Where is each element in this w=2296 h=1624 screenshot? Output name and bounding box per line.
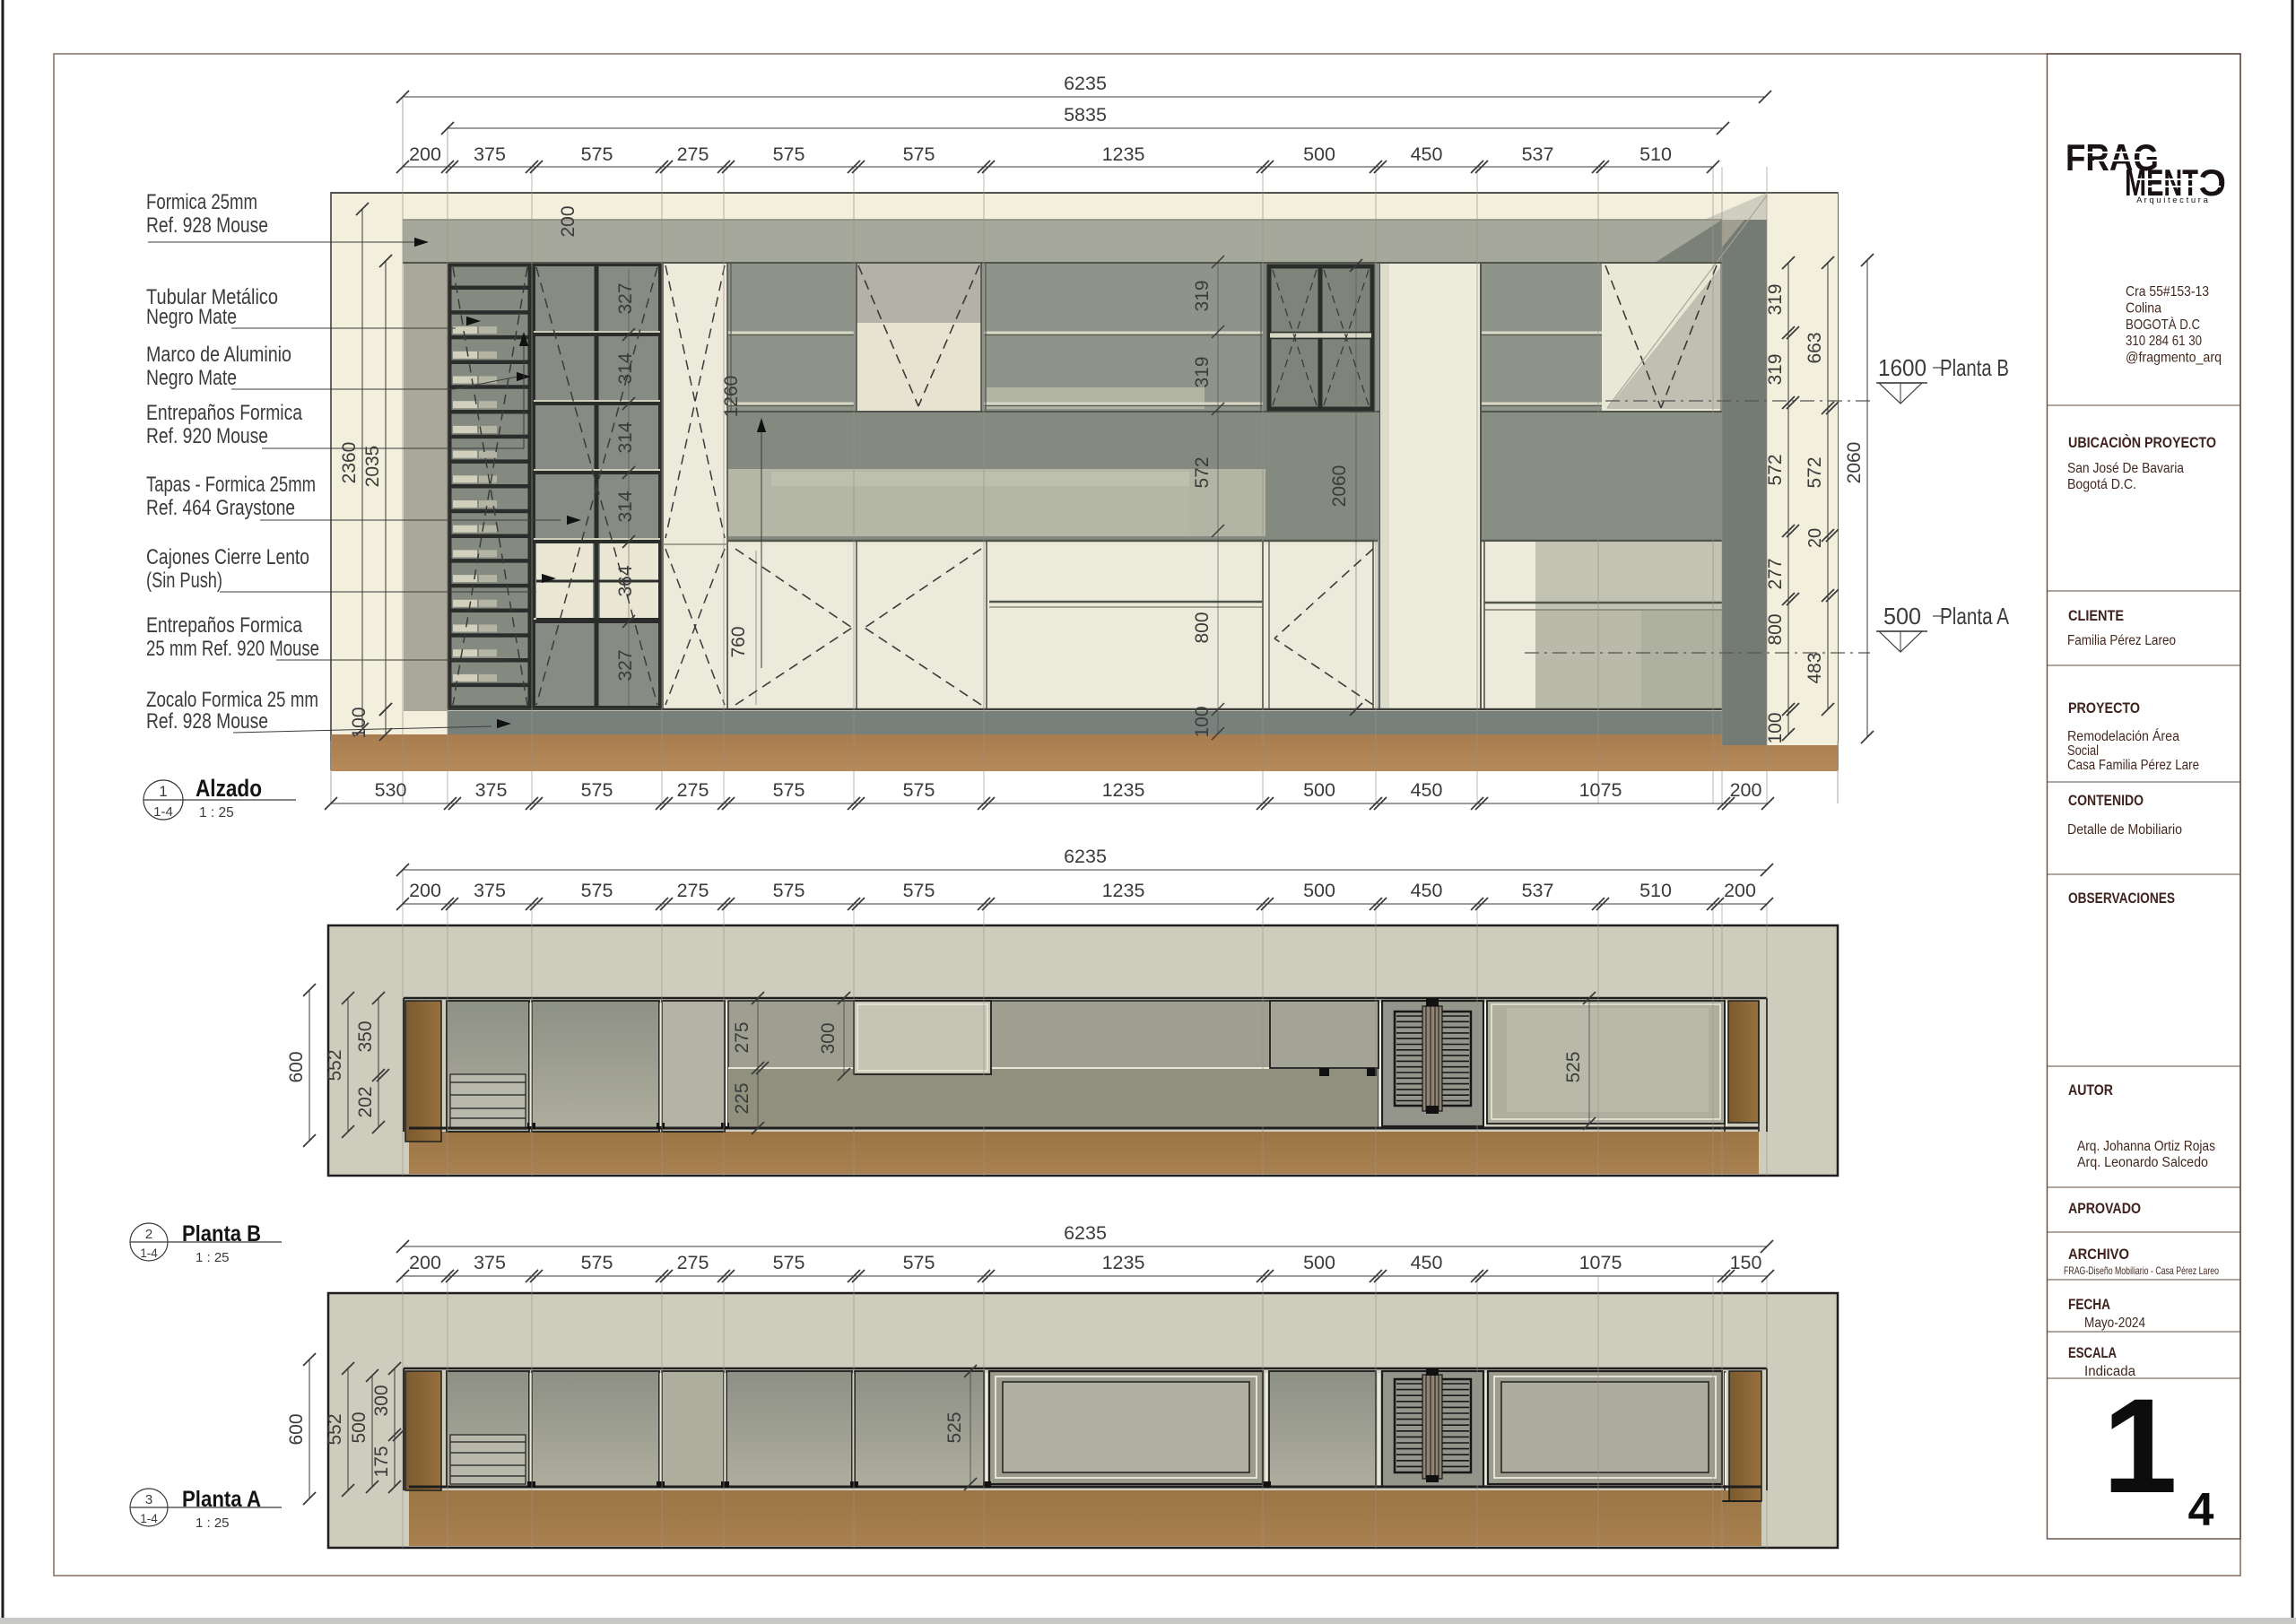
svg-text:310 284 61 30: 310 284 61 30 [2126,334,2202,349]
svg-text:1-4: 1-4 [140,1512,158,1525]
svg-text:510: 510 [1639,880,1672,901]
svg-text:575: 575 [773,880,805,901]
svg-text:@fragmento_arq: @fragmento_arq [2126,351,2222,366]
svg-text:202: 202 [355,1086,376,1117]
svg-text:450: 450 [1411,779,1443,801]
svg-text:Zocalo Formica 25 mm: Zocalo Formica 25 mm [146,688,318,712]
svg-text:319: 319 [1192,280,1213,311]
svg-text:PROYECTO: PROYECTO [2068,699,2140,716]
svg-text:1 : 25: 1 : 25 [196,1515,230,1531]
svg-text:Ref. 928 Mouse: Ref. 928 Mouse [146,213,268,238]
svg-text:UBICACIÒN PROYECTO: UBICACIÒN PROYECTO [2068,434,2216,451]
svg-text:5835: 5835 [1064,104,1107,126]
svg-text:Mayo-2024: Mayo-2024 [2084,1316,2145,1331]
svg-text:1: 1 [2102,1370,2177,1521]
svg-text:1235: 1235 [1102,779,1145,801]
svg-text:San José De Bavaria: San José De Bavaria [2067,461,2184,476]
svg-text:200: 200 [409,1252,441,1273]
svg-text:2035: 2035 [362,446,383,488]
svg-text:575: 575 [773,143,805,165]
svg-text:314: 314 [615,491,636,522]
svg-text:Social: Social [2067,743,2099,759]
svg-text:552: 552 [325,1049,345,1081]
svg-text:275: 275 [677,1252,709,1273]
svg-text:800: 800 [1765,613,1786,645]
svg-text:2: 2 [145,1227,152,1242]
svg-text:FECHA: FECHA [2068,1296,2110,1313]
svg-text:6235: 6235 [1064,846,1107,867]
svg-text:275: 275 [677,143,709,165]
svg-text:575: 575 [581,1252,613,1273]
svg-text:200: 200 [409,143,441,165]
svg-text:200: 200 [1724,880,1756,901]
svg-text:319: 319 [1765,283,1786,315]
svg-text:600: 600 [286,1051,307,1082]
svg-text:Entrepaños Formica: Entrepaños Formica [146,613,303,638]
svg-text:ARCHIVO: ARCHIVO [2068,1246,2129,1263]
svg-text:537: 537 [1522,880,1554,901]
svg-text:6235: 6235 [1064,1222,1107,1244]
svg-text:300: 300 [818,1022,839,1054]
svg-text:500: 500 [349,1411,370,1443]
svg-text:450: 450 [1411,143,1443,165]
svg-text:Cajones Cierre Lento: Cajones Cierre Lento [146,545,309,569]
svg-text:450: 450 [1411,1252,1443,1273]
svg-text:OBSERVACIONES: OBSERVACIONES [2068,890,2175,907]
svg-text:CLIENTE: CLIENTE [2068,607,2124,624]
svg-text:Cra 55#153-13: Cra 55#153-13 [2126,284,2209,300]
svg-text:663: 663 [1805,332,1825,363]
svg-text:375: 375 [475,779,508,801]
svg-text:Tapas - Formica 25mm: Tapas - Formica 25mm [146,473,316,497]
svg-text:1075: 1075 [1579,779,1622,801]
svg-text:6235: 6235 [1064,73,1107,94]
svg-text:537: 537 [1522,143,1554,165]
svg-text:375: 375 [474,143,506,165]
svg-text:1-4: 1-4 [153,804,173,820]
svg-text:275: 275 [677,880,709,901]
svg-text:275: 275 [677,779,709,801]
svg-text:575: 575 [903,1252,935,1273]
svg-text:525: 525 [944,1411,965,1443]
svg-text:1600: 1600 [1878,354,1926,381]
svg-text:100: 100 [1192,706,1213,737]
svg-text:Casa Familia Pérez Lare: Casa Familia Pérez Lare [2067,758,2199,773]
svg-text:1075: 1075 [1579,1252,1622,1273]
svg-text:375: 375 [474,1252,506,1273]
svg-text:314: 314 [615,352,636,384]
svg-text:1-4: 1-4 [140,1246,158,1260]
svg-text:ESCALA: ESCALA [2068,1344,2117,1361]
svg-text:150: 150 [1730,1252,1762,1273]
svg-text:760: 760 [728,626,749,657]
svg-text:20: 20 [1805,528,1825,548]
svg-text:175: 175 [371,1446,392,1477]
svg-text:Formica 25mm: Formica 25mm [146,190,257,214]
svg-text:300: 300 [371,1385,392,1416]
svg-text:Alzado: Alzado [196,775,262,802]
svg-text:530: 530 [375,779,407,801]
svg-text:BOGOTÀ D.C: BOGOTÀ D.C [2126,316,2200,333]
svg-text:Entrepaños Formica: Entrepaños Formica [146,401,303,425]
svg-text:350: 350 [355,1020,376,1052]
svg-text:575: 575 [773,1252,805,1273]
svg-text:100: 100 [349,707,370,738]
svg-text:500: 500 [1303,143,1335,165]
svg-text:572: 572 [1192,456,1213,488]
svg-text:575: 575 [903,143,935,165]
svg-text:Remodelación Área: Remodelación Área [2067,729,2179,744]
svg-text:Planta B: Planta B [1940,354,2009,381]
svg-text:800: 800 [1192,612,1213,643]
svg-text:450: 450 [1411,880,1443,901]
svg-text:575: 575 [903,880,935,901]
svg-text:Colina: Colina [2126,300,2161,316]
svg-text:277: 277 [1765,558,1786,589]
svg-text:314: 314 [615,421,636,453]
svg-text:Bogotá D.C.: Bogotá D.C. [2067,477,2136,492]
svg-text:2060: 2060 [1329,465,1350,508]
svg-text:Arq. Leonardo Salcedo: Arq. Leonardo Salcedo [2077,1155,2208,1170]
svg-text:25 mm Ref. 920 Mouse: 25 mm Ref. 920 Mouse [146,637,319,661]
svg-text:CONTENIDO: CONTENIDO [2068,792,2144,809]
svg-text:319: 319 [1192,356,1213,387]
svg-text:319: 319 [1765,353,1786,385]
svg-text:APROVADO: APROVADO [2068,1200,2141,1217]
svg-text:1: 1 [159,783,167,800]
svg-text:100: 100 [1765,712,1786,743]
svg-text:FRAG-Diseño Mobiliario - Casa: FRAG-Diseño Mobiliario - Casa Pérez Lare… [2064,1264,2219,1277]
svg-text:(Sin Push): (Sin Push) [146,569,222,593]
svg-text:525: 525 [1563,1051,1584,1082]
svg-text:Planta B: Planta B [182,1221,261,1246]
svg-text:575: 575 [581,880,613,901]
svg-text:Arq. Johanna Ortiz Rojas: Arq. Johanna Ortiz Rojas [2077,1139,2215,1154]
svg-text:1235: 1235 [1102,1252,1145,1273]
svg-text:200: 200 [409,880,441,901]
svg-text:Negro Mate: Negro Mate [146,366,237,390]
svg-text:483: 483 [1805,652,1825,683]
svg-text:500: 500 [1883,603,1921,630]
svg-text:4: 4 [2188,1484,2214,1536]
svg-text:364: 364 [615,565,636,596]
svg-text:1235: 1235 [1102,143,1145,165]
svg-text:A r q u i t e c t u r a: A r q u i t e c t u r a [2136,195,2208,205]
svg-text:500: 500 [1303,880,1335,901]
svg-text:375: 375 [474,880,506,901]
svg-text:Planta A: Planta A [182,1487,261,1512]
svg-text:600: 600 [286,1413,307,1445]
svg-text:1 : 25: 1 : 25 [199,805,234,821]
svg-text:500: 500 [1303,1252,1335,1273]
svg-text:552: 552 [325,1413,345,1445]
svg-text:225: 225 [732,1082,752,1114]
svg-text:2060: 2060 [1844,442,1865,484]
svg-text:Negro Mate: Negro Mate [146,305,237,329]
svg-text:1260: 1260 [721,376,742,418]
svg-text:575: 575 [581,779,613,801]
svg-text:327: 327 [615,649,636,681]
svg-text:Ref. 464 Graystone: Ref. 464 Graystone [146,496,295,520]
svg-text:Ref. 928 Mouse: Ref. 928 Mouse [146,709,268,734]
svg-text:327: 327 [615,282,636,314]
svg-text:200: 200 [558,205,578,237]
svg-text:Ref. 920 Mouse: Ref. 920 Mouse [146,424,268,448]
svg-text:Planta A: Planta A [1940,603,2010,630]
svg-text:3: 3 [145,1492,152,1507]
svg-text:Familia Pérez Lareo: Familia Pérez Lareo [2067,633,2176,648]
svg-text:1235: 1235 [1102,880,1145,901]
svg-text:575: 575 [903,779,935,801]
svg-text:575: 575 [581,143,613,165]
svg-text:1 : 25: 1 : 25 [196,1250,230,1265]
svg-text:Marco de Aluminio: Marco de Aluminio [146,343,291,367]
svg-text:Detalle de Mobiliario: Detalle de Mobiliario [2067,822,2182,838]
svg-text:572: 572 [1805,456,1825,488]
svg-text:500: 500 [1303,779,1335,801]
svg-text:275: 275 [732,1021,752,1053]
svg-text:510: 510 [1639,143,1672,165]
svg-text:AUTOR: AUTOR [2068,1081,2113,1099]
svg-text:575: 575 [773,779,805,801]
svg-text:200: 200 [1730,779,1762,801]
svg-text:572: 572 [1765,454,1786,485]
